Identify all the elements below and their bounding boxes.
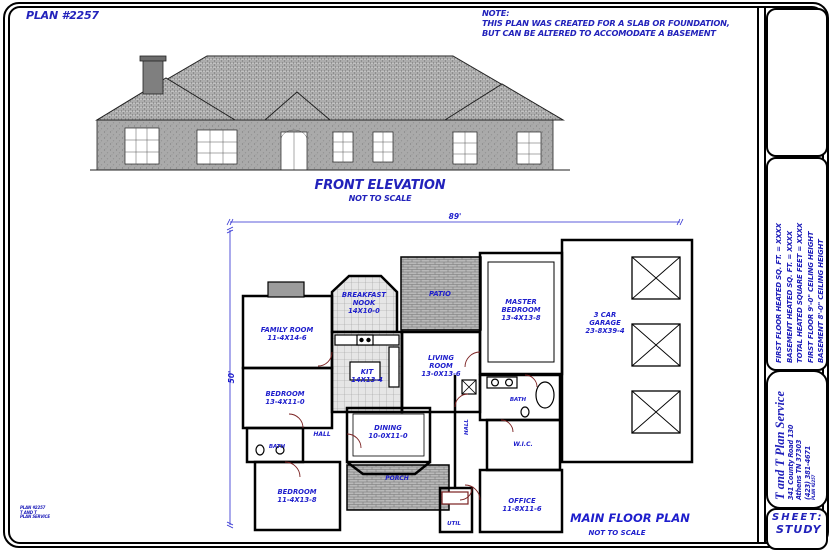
fireplace xyxy=(268,282,304,297)
sink-icon xyxy=(506,379,513,386)
room-label-garage-1: 3 CAR xyxy=(594,311,617,319)
room-size-kitchen: 14X13-4 xyxy=(351,376,383,384)
room-size-living: 13-0X13-6 xyxy=(421,370,461,378)
room-size-garage: 23-8X39-4 xyxy=(585,327,625,335)
room-label-porch: PORCH xyxy=(385,475,409,482)
note-block: NOTE: THIS PLAN WAS CREATED FOR A SLAB O… xyxy=(482,8,730,38)
room-label-bedroom2: BEDROOM xyxy=(265,390,304,398)
sink-icon xyxy=(492,379,499,386)
title-block-separator xyxy=(757,6,766,542)
room-label-kitchen: KIT xyxy=(361,368,375,376)
room-label-bedroom3: BEDROOM xyxy=(277,488,316,496)
front-elevation-title: FRONT ELEVATION xyxy=(298,178,462,193)
room-size-family: 11-4X14-6 xyxy=(267,334,307,342)
room-size-bedroom2: 13-4X11-0 xyxy=(265,398,305,406)
room-label-master-bath: BATH xyxy=(510,397,527,403)
spec-line-1: FIRST FLOOR HEATED SQ. FT. = XXXX xyxy=(774,161,785,363)
room-label-bath2: BATH xyxy=(269,444,286,450)
width-dimension: 89' xyxy=(449,212,462,221)
company-plan-ref: PLAN #2257 xyxy=(812,372,816,500)
room-label-office: OFFICE xyxy=(508,497,536,505)
company-address1: 341 County Road 130 xyxy=(787,372,795,500)
room-label-master-2: BEDROOM xyxy=(501,306,540,314)
front-elevation-drawing xyxy=(85,40,575,180)
spec-line-3: TOTAL HEATED SQUARE FEET = XXXX xyxy=(795,161,806,363)
specs-text: FIRST FLOOR HEATED SQ. FT. = XXXX BASEME… xyxy=(774,161,824,363)
spec-line-5: BASEMENT 8'-0" CEILING HEIGHT xyxy=(816,161,827,363)
room-label-patio: PATIO xyxy=(429,290,451,298)
spec-line-4: FIRST FLOOR 9'-0" CEILING HEIGHT xyxy=(806,161,817,363)
spec-line-2: BASEMENT HEATED SQ. FT. = XXXX xyxy=(785,161,796,363)
toilet-icon xyxy=(521,407,529,417)
room-label-hall2: HALL xyxy=(464,419,470,435)
room-size-bedroom3: 11-4X13-8 xyxy=(277,496,317,504)
note-title: NOTE: xyxy=(482,8,730,18)
room-size-nook: 14X10-0 xyxy=(348,307,380,315)
company-address2: Athens TN 37303 xyxy=(795,372,803,500)
room-size-dining: 10-0X11-0 xyxy=(368,432,408,440)
title-block-empty-box xyxy=(766,8,828,157)
room-size-office: 11-8X11-6 xyxy=(502,505,542,513)
floor-plan-drawing: 89' 50' xyxy=(225,212,705,542)
room-label-hall: HALL xyxy=(313,431,330,438)
room-label-garage-2: GARAGE xyxy=(589,319,621,327)
chimney-cap xyxy=(140,56,166,61)
plan-number: PLAN #2257 xyxy=(26,9,99,22)
company-text: T and T Plan Service 341 County Road 130… xyxy=(774,372,826,500)
chimney xyxy=(143,60,163,94)
room-size-master: 13-4X13-8 xyxy=(501,314,541,322)
sheet-label: SHEET: xyxy=(768,512,826,523)
toilet-icon xyxy=(256,445,264,455)
sheet-box: SHEET: STUDY xyxy=(766,508,828,550)
bathtub-icon xyxy=(536,382,554,408)
room-label-master-1: MASTER xyxy=(505,298,536,306)
corner-stamp: PLAN #2257 T AND T PLAN SERVICE xyxy=(20,506,50,520)
main-floor-plan-scale: NOT TO SCALE xyxy=(588,529,645,537)
house-elevation xyxy=(90,56,570,170)
house-body xyxy=(97,120,553,170)
porch-area xyxy=(347,465,449,510)
room-label-nook-2: NOOK xyxy=(353,299,376,307)
depth-dimension: 50' xyxy=(227,371,236,384)
washer-dryer xyxy=(442,492,468,504)
room-label-family: FAMILY ROOM xyxy=(261,326,314,334)
corner-stamp-line3: PLAN SERVICE xyxy=(20,515,50,520)
company-name: T and T Plan Service xyxy=(774,372,787,500)
note-line2: BUT CAN BE ALTERED TO ACCOMODATE A BASEM… xyxy=(482,28,730,38)
sheet-name: STUDY xyxy=(768,523,826,536)
room-label-wic: W.I.C. xyxy=(513,441,533,448)
note-line1: THIS PLAN WAS CREATED FOR A SLAB OR FOUN… xyxy=(482,18,730,28)
room-label-living-2: ROOM xyxy=(429,362,453,370)
main-floor-plan-title: MAIN FLOOR PLAN xyxy=(570,511,690,525)
room-label-dining: DINING xyxy=(374,424,402,432)
room-label-living-1: LIVING xyxy=(428,354,454,362)
room-label-nook-1: BREAKFAST xyxy=(342,291,388,299)
garage-doors xyxy=(632,257,680,433)
kitchen-counter-side xyxy=(389,347,399,387)
front-elevation-scale: NOT TO SCALE xyxy=(298,194,462,203)
room-label-util: UTIL xyxy=(447,521,461,527)
